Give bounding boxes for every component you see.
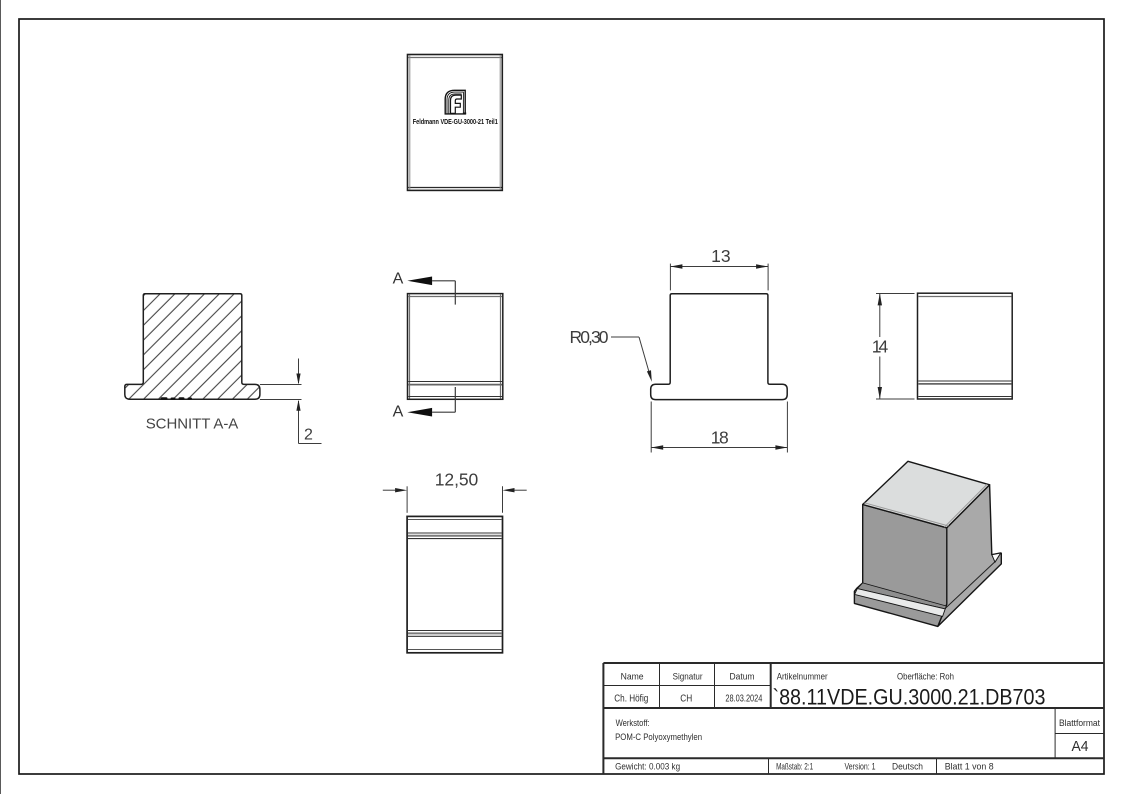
svg-text:12,50: 12,50 [435, 470, 479, 490]
svg-text:Maßstab: 2:1: Maßstab: 2:1 [776, 761, 813, 772]
svg-text:14: 14 [872, 337, 889, 357]
svg-text:Oberfläche: Roh: Oberfläche: Roh [897, 672, 954, 682]
svg-text:Datum: Datum [730, 672, 755, 682]
svg-text:CH: CH [680, 693, 692, 704]
svg-text:Werkstoff:: Werkstoff: [616, 718, 650, 728]
svg-text:SCHNITT A-A: SCHNITT A-A [146, 415, 239, 432]
svg-text:R0,30: R0,30 [570, 327, 609, 347]
svg-text:Blattformat: Blattformat [1059, 718, 1100, 728]
svg-text:18: 18 [711, 427, 729, 447]
svg-text:Name: Name [621, 672, 644, 682]
svg-text:Signatur: Signatur [673, 672, 703, 682]
svg-text:`88.11VDE.GU.3000.21.DB703: `88.11VDE.GU.3000.21.DB703 [773, 685, 1046, 710]
svg-text:13: 13 [711, 246, 731, 266]
svg-text:Gewicht: 0.003 kg: Gewicht: 0.003 kg [615, 761, 680, 772]
svg-text:Version: 1: Version: 1 [845, 761, 876, 772]
svg-text:28.03.2024: 28.03.2024 [725, 693, 762, 704]
svg-text:A4: A4 [1072, 738, 1089, 755]
svg-text:POM-C Polyoxymethylen: POM-C Polyoxymethylen [615, 732, 702, 743]
svg-text:Blatt 1 von 8: Blatt 1 von 8 [945, 761, 994, 772]
svg-text:A: A [393, 270, 404, 287]
svg-text:Ch. Höfig: Ch. Höfig [614, 693, 648, 704]
svg-text:Deutsch: Deutsch [892, 761, 923, 772]
svg-text:2: 2 [304, 426, 313, 443]
svg-text:Feldmann VDE-GU-3000-21 Teil1: Feldmann VDE-GU-3000-21 Teil1 [413, 117, 498, 126]
svg-text:A: A [393, 404, 404, 421]
svg-text:Artikelnummer: Artikelnummer [777, 672, 828, 682]
